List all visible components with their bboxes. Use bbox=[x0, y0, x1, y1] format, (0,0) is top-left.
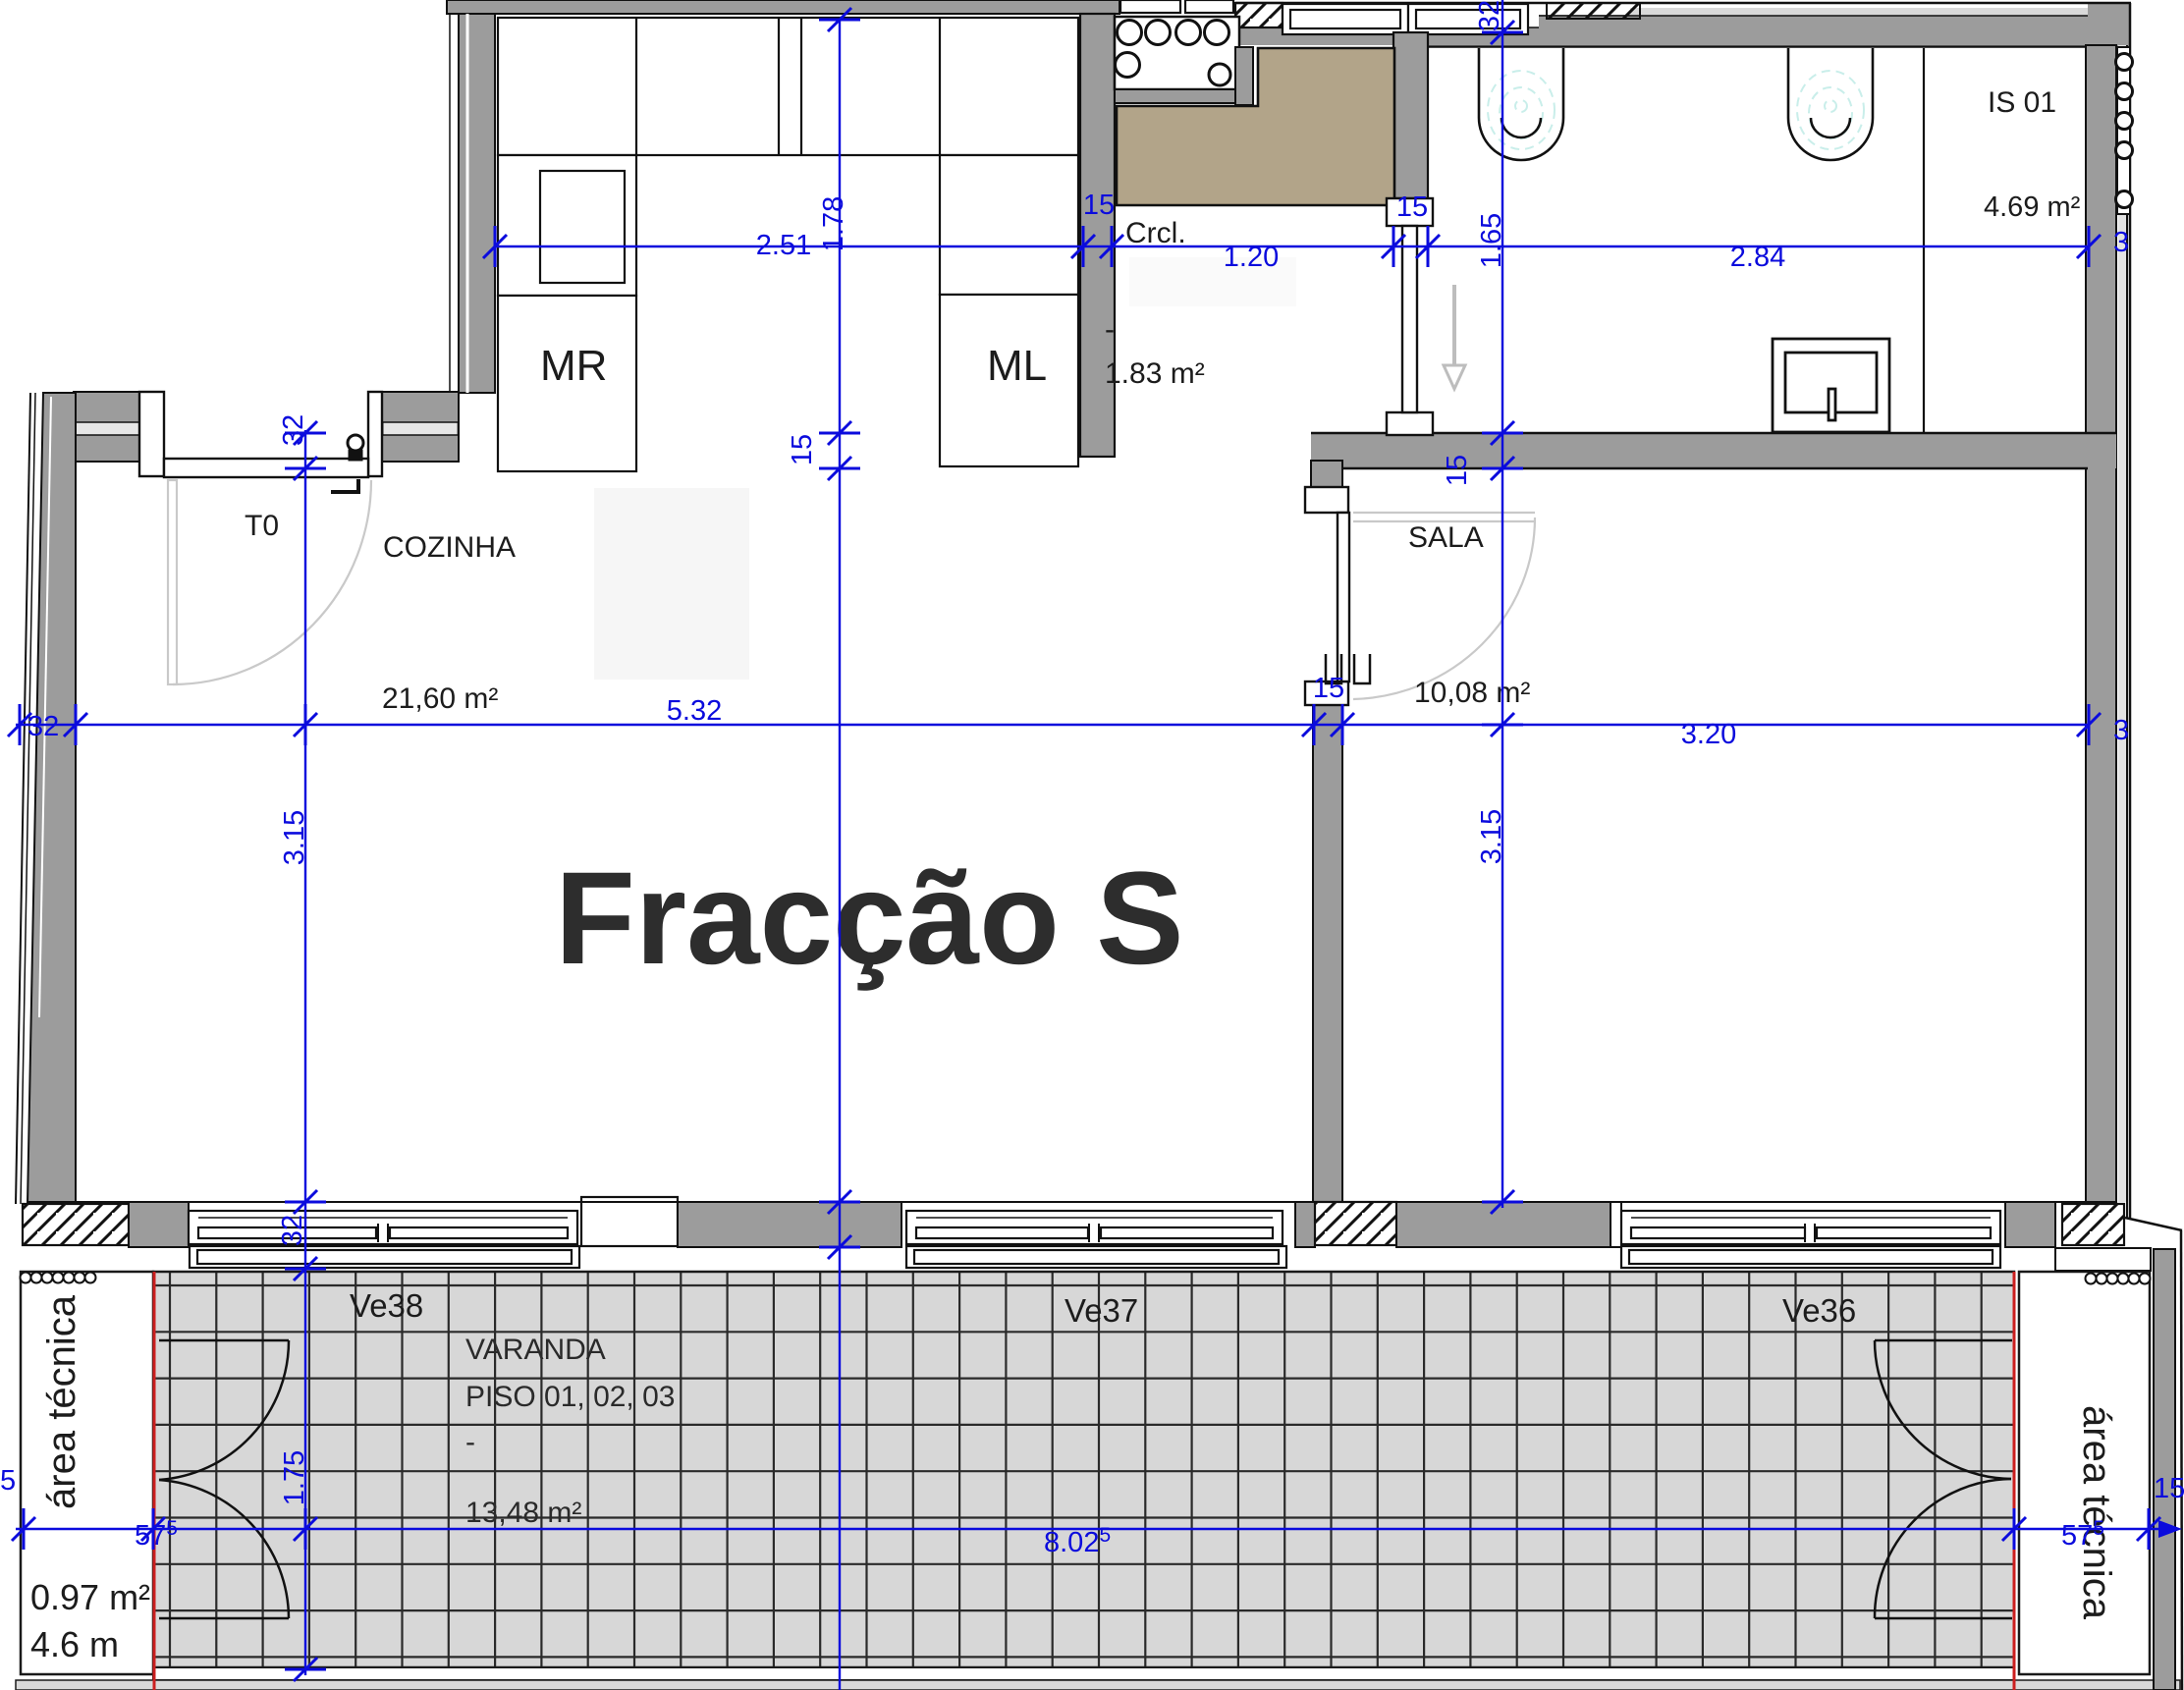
svg-text:3: 3 bbox=[2113, 715, 2129, 746]
svg-text:13,48 m²: 13,48 m² bbox=[465, 1497, 581, 1529]
svg-text:2.84: 2.84 bbox=[1730, 242, 1785, 273]
svg-text:3: 3 bbox=[2113, 227, 2129, 258]
svg-text:SALA: SALA bbox=[1408, 521, 1484, 554]
svg-text:15: 15 bbox=[1313, 673, 1344, 704]
svg-text:4.6 m: 4.6 m bbox=[30, 1624, 119, 1664]
svg-text:1.83 m²: 1.83 m² bbox=[1105, 357, 1205, 390]
svg-text:3.20: 3.20 bbox=[1681, 719, 1736, 750]
svg-text:3.15: 3.15 bbox=[279, 810, 310, 865]
svg-text:15: 15 bbox=[1396, 191, 1428, 223]
svg-text:3.15: 3.15 bbox=[1476, 809, 1507, 864]
svg-text:Crcl.: Crcl. bbox=[1125, 217, 1186, 249]
svg-text:área técnica: área técnica bbox=[40, 1294, 83, 1509]
svg-text:15: 15 bbox=[1442, 455, 1473, 486]
svg-text:Ve38: Ve38 bbox=[350, 1287, 423, 1324]
svg-text:15: 15 bbox=[1083, 190, 1115, 221]
svg-text:15: 15 bbox=[787, 434, 818, 465]
svg-text:IS 01: IS 01 bbox=[1988, 86, 2056, 119]
svg-text:ML: ML bbox=[987, 342, 1047, 390]
svg-text:-: - bbox=[1105, 313, 1115, 346]
svg-text:1.65: 1.65 bbox=[1476, 213, 1507, 268]
svg-text:T0: T0 bbox=[245, 510, 279, 542]
svg-text:2.51: 2.51 bbox=[756, 230, 811, 261]
svg-text:10,08 m²: 10,08 m² bbox=[1414, 677, 1530, 709]
svg-text:1.20: 1.20 bbox=[1224, 242, 1279, 273]
svg-text:Fracção S: Fracção S bbox=[555, 845, 1184, 992]
svg-text:área técnica: área técnica bbox=[2075, 1405, 2118, 1620]
svg-text:5.32: 5.32 bbox=[667, 695, 722, 727]
svg-text:32: 32 bbox=[277, 1215, 308, 1246]
svg-text:Ve37: Ve37 bbox=[1065, 1292, 1138, 1329]
svg-text:0.97 m²: 0.97 m² bbox=[30, 1577, 150, 1617]
svg-text:15: 15 bbox=[2154, 1473, 2184, 1504]
svg-text:21,60 m²: 21,60 m² bbox=[382, 682, 498, 715]
svg-text:Ve36: Ve36 bbox=[1782, 1292, 1856, 1329]
svg-text:32: 32 bbox=[1474, 0, 1505, 31]
svg-text:1.78: 1.78 bbox=[818, 196, 849, 251]
svg-text:MR: MR bbox=[540, 342, 607, 390]
svg-text:PISO 01, 02, 03: PISO 01, 02, 03 bbox=[465, 1381, 675, 1413]
svg-text:-: - bbox=[465, 1426, 475, 1458]
svg-text:VARANDA: VARANDA bbox=[465, 1334, 606, 1366]
svg-text:1.75: 1.75 bbox=[279, 1450, 310, 1505]
svg-text:5: 5 bbox=[0, 1465, 16, 1497]
svg-text:COZINHA: COZINHA bbox=[383, 531, 516, 564]
svg-text:4.69 m²: 4.69 m² bbox=[1984, 191, 2081, 223]
svg-text:32: 32 bbox=[27, 711, 59, 742]
svg-text:32: 32 bbox=[278, 414, 309, 446]
